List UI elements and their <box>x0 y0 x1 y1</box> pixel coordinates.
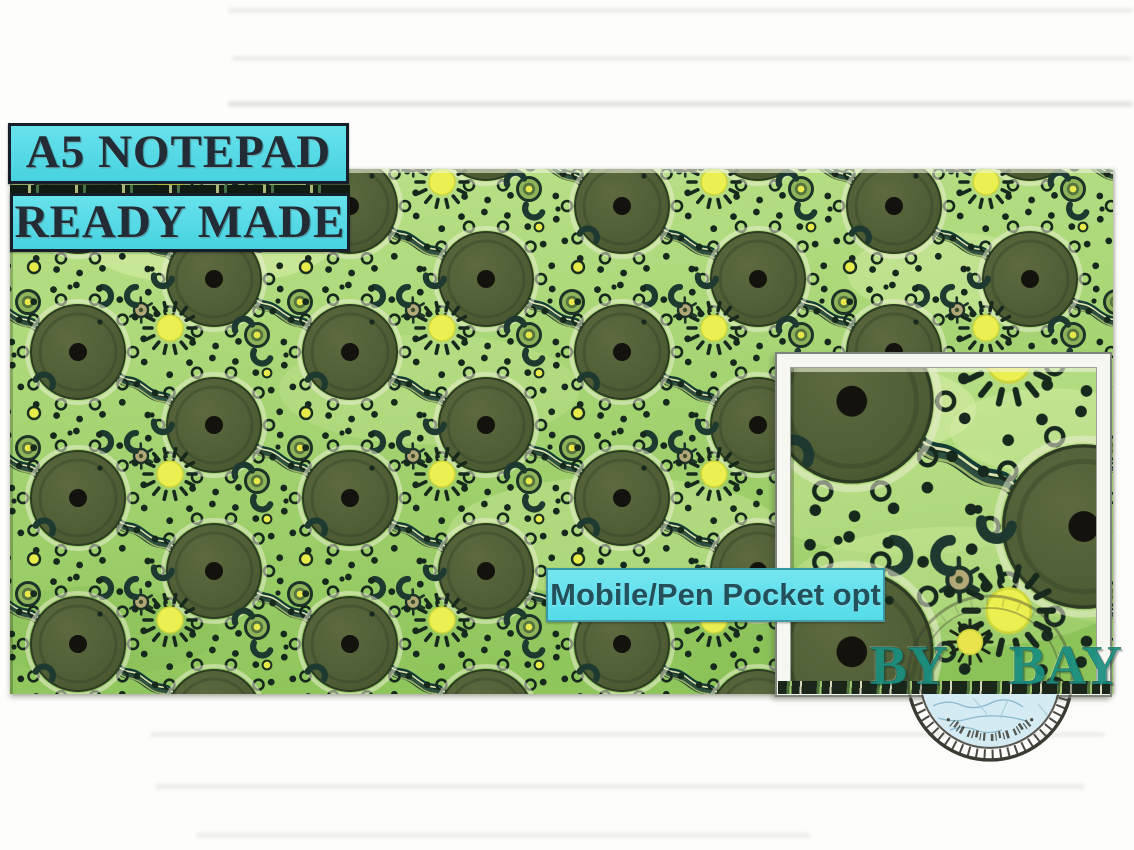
photo-artifact-line <box>228 8 1133 13</box>
badge-gap-strip <box>10 185 350 193</box>
badge-a5-notepad: A5 NOTEPAD <box>8 123 349 184</box>
brand-watermark: BY BAY <box>870 633 1122 695</box>
photo-artifact-line <box>155 784 1085 789</box>
badge-a5-label: A5 NOTEPAD <box>26 126 332 178</box>
brand-word-by: BY <box>870 637 948 695</box>
brand-word-bay: BAY <box>1009 637 1122 695</box>
photo-artifact-line <box>196 833 811 838</box>
badge-pocket-label: Mobile/Pen Pocket opt <box>550 577 881 612</box>
photo-artifact-line <box>232 56 1132 61</box>
badge-ready-made: READY MADE <box>10 193 350 252</box>
photo-artifact-line <box>228 101 1133 107</box>
badge-ready-label: READY MADE <box>15 196 346 248</box>
badge-pocket-option: Mobile/Pen Pocket opt <box>546 568 885 622</box>
listing-photo: A5 NOTEPAD READY MADE Mobile/Pen Pocket … <box>0 0 1134 850</box>
